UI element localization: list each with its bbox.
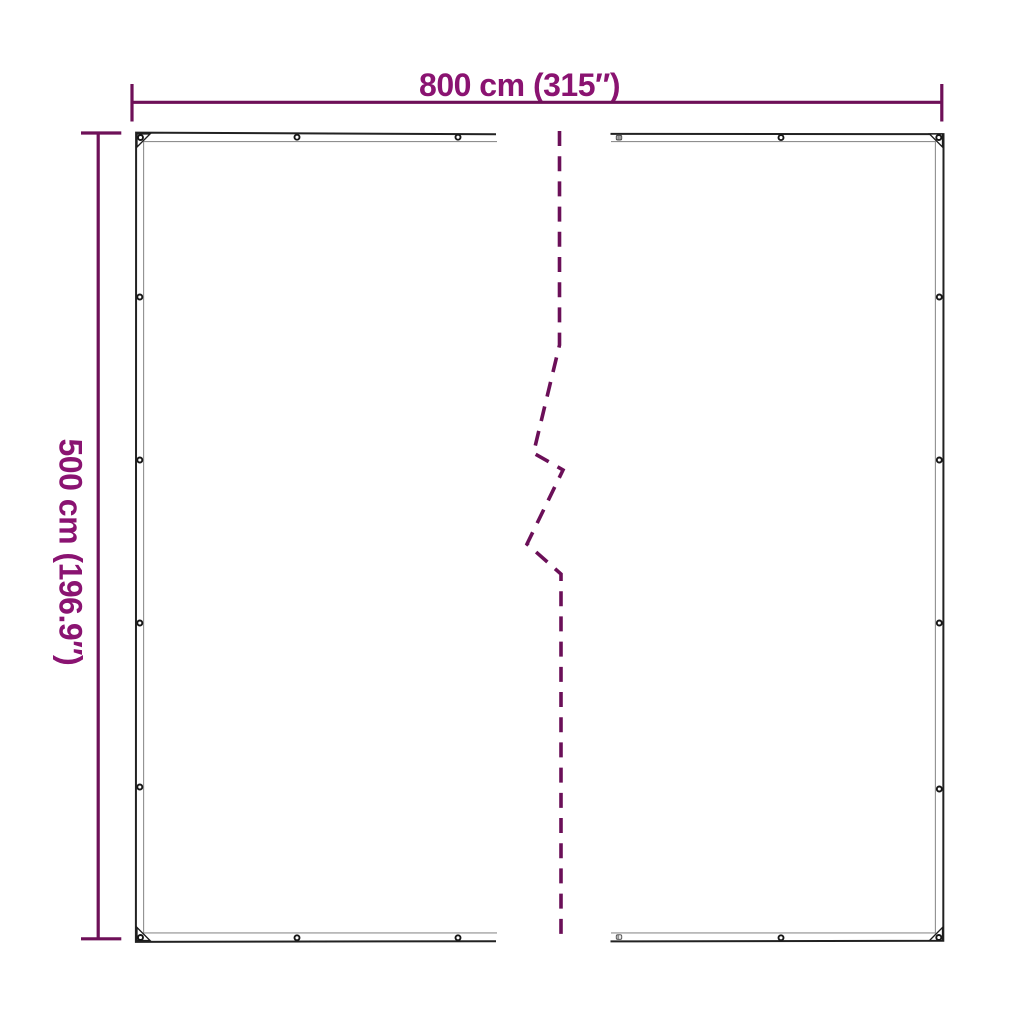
svg-text:800 cm (315″): 800 cm (315″): [419, 67, 620, 103]
svg-text:500 cm (196.9″): 500 cm (196.9″): [53, 438, 89, 665]
